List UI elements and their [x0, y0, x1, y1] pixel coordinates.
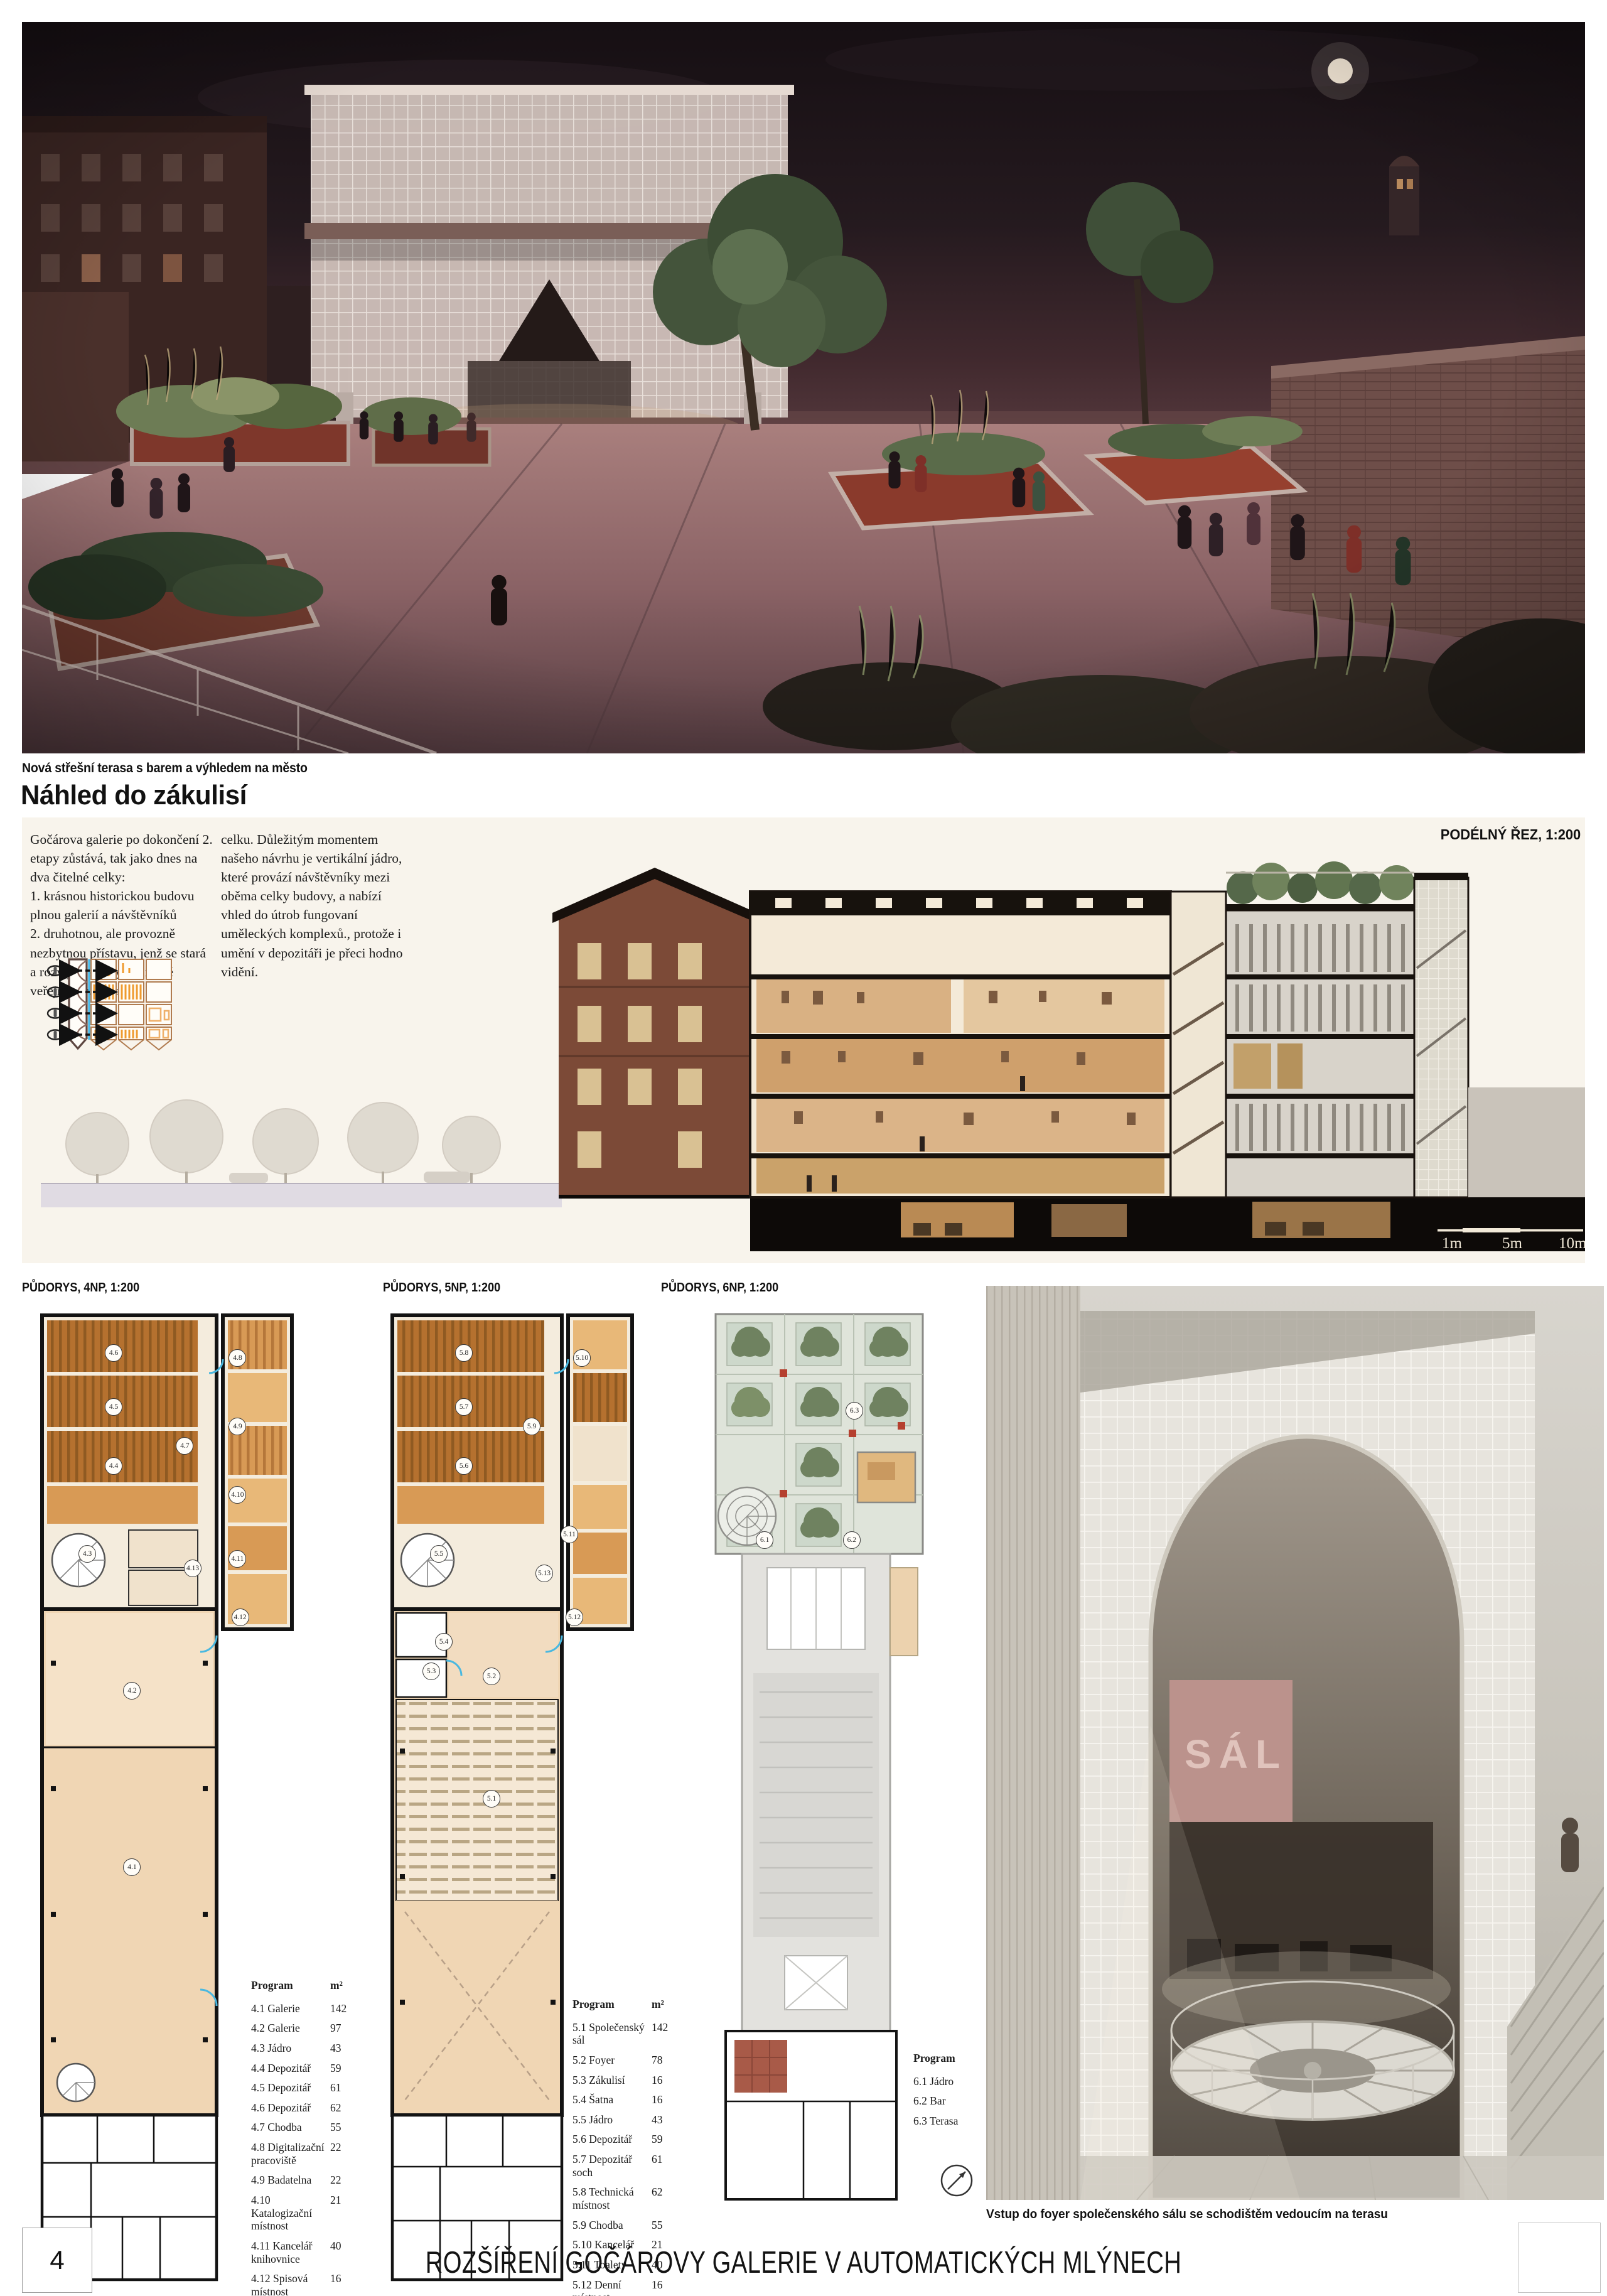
program-row: 4.5 Depozitář61 [251, 2081, 363, 2094]
plan-label-5np: PŮDORYS, 5NP, 1:200 [383, 1281, 500, 1295]
rooftop-terrace-render [22, 22, 1585, 753]
stamp-box [1518, 2223, 1601, 2293]
slat-wall [986, 1286, 1080, 2200]
program-row: 5.5 Jádro43 [572, 2113, 684, 2126]
program-row: 5.8 Technická místnost62 [572, 2186, 684, 2211]
plan-label-6np: PŮDORYS, 6NP, 1:200 [661, 1281, 778, 1295]
board-title: ROZŠÍŘENÍ GOČÁROVY GALERIE V AUTOMATICKÝ… [426, 2245, 1182, 2280]
svg-text:5m: 5m [1502, 1235, 1523, 1252]
vertical-core-section [1171, 892, 1226, 1197]
program-row: 5.7 Depozitář soch61 [572, 2153, 684, 2179]
longitudinal-section-render: 1m 5m 10m [22, 817, 1585, 1263]
program-table-4np: Programm²4.1 Galerie1424.2 Galerie974.3 … [251, 1979, 363, 2296]
presentation-board: Nová střešní terasa s barem a výhledem n… [0, 0, 1607, 2296]
svg-text:10m: 10m [1559, 1235, 1585, 1252]
program-row: 5.2 Foyer78 [572, 2054, 684, 2067]
program-row: 4.9 Badatelna22 [251, 2174, 363, 2187]
historic-wing-section [552, 868, 757, 1195]
program-row: 4.4 Depozitář59 [251, 2062, 363, 2075]
program-row: 4.2 Galerie97 [251, 2022, 363, 2035]
depository-section [1226, 861, 1414, 1197]
roof-plan [742, 1554, 918, 2031]
gallery-wing-section [750, 892, 1171, 1197]
svg-text:1m: 1m [1442, 1235, 1463, 1252]
program-row: 5.4 Šatna16 [572, 2093, 684, 2106]
program-row: 5.1 Společenský sál142 [572, 2021, 684, 2047]
stair-render-caption: Vstup do foyer společenského sálu se sch… [986, 2207, 1388, 2222]
program-row: 4.12 Spisová místnost16 [251, 2272, 363, 2296]
program-table-header: Programm² [251, 1979, 363, 1992]
program-row: 4.3 Jádro43 [251, 2042, 363, 2055]
stair-tower-section [1414, 873, 1468, 1197]
program-row: 4.6 Depozitář62 [251, 2101, 363, 2115]
program-row: 5.6 Depozitář59 [572, 2133, 684, 2146]
program-row: 4.1 Galerie142 [251, 2002, 363, 2015]
plan-label-4np: PŮDORYS, 4NP, 1:200 [22, 1281, 139, 1295]
street-context [41, 1100, 562, 1207]
stair-foyer-render: SÁL [986, 1286, 1604, 2200]
program-row: 4.8 Digitalizační pracoviště22 [251, 2141, 363, 2167]
program-row: 5.9 Chodba55 [572, 2219, 684, 2232]
program-row: 4.10 Katalogizační místnost21 [251, 2194, 363, 2233]
page-number-box: 4 [22, 2228, 92, 2293]
program-row: 4.11 Kancelář knihovnice40 [251, 2239, 363, 2265]
program-row: 5.12 Denní místnost16 [572, 2278, 684, 2296]
sal-wall-text: SÁL [1185, 1732, 1287, 1777]
section-heading: Náhled do zákulisí [21, 780, 247, 811]
program-table-header: Programm² [572, 1998, 684, 2011]
annex-plan [726, 2031, 896, 2199]
program-row: 5.3 Zákulisí16 [572, 2074, 684, 2087]
page-number: 4 [50, 2245, 64, 2275]
hero-caption: Nová střešní terasa s barem a výhledem n… [22, 761, 308, 776]
program-row: 4.7 Chodba55 [251, 2121, 363, 2134]
north-arrow [942, 2165, 972, 2196]
